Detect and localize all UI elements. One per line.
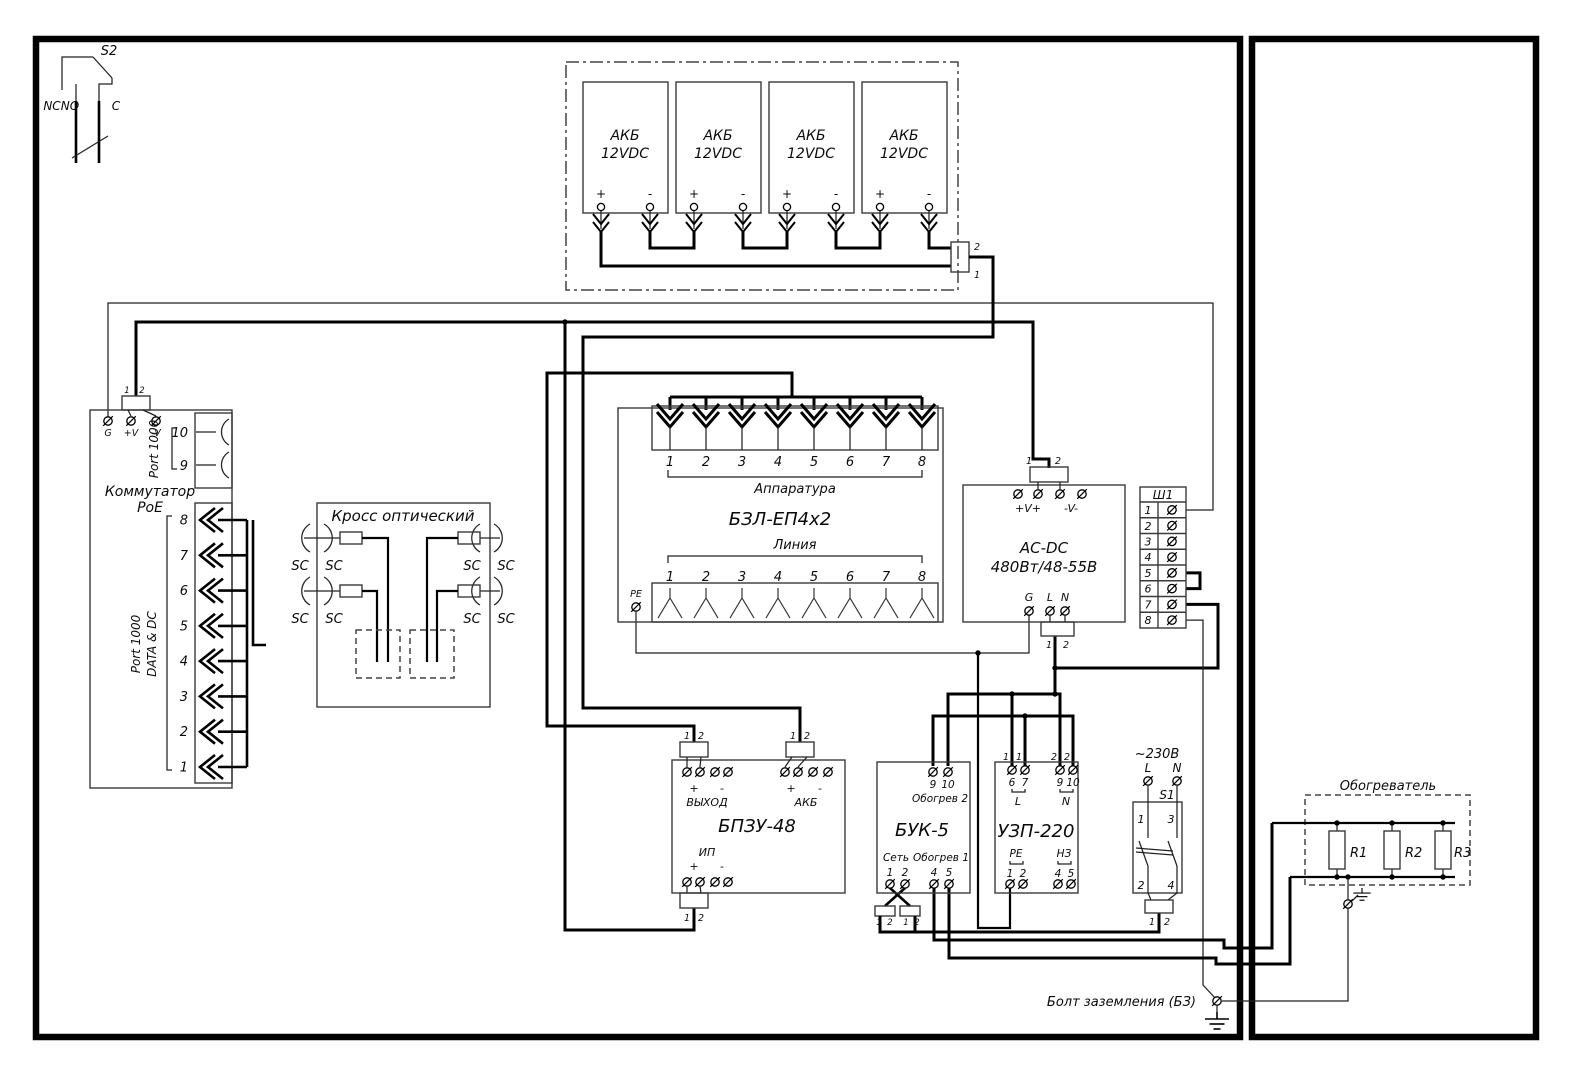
l-label: L bbox=[1047, 591, 1053, 604]
screw-terminal-icon bbox=[723, 767, 733, 777]
screw-terminal-icon bbox=[808, 767, 818, 777]
cross-title: Кросс оптический bbox=[332, 507, 475, 525]
data-ports-label-line2: DATA & DC bbox=[145, 611, 159, 677]
net-cross-wire bbox=[885, 888, 905, 906]
contact-number: 3 bbox=[1168, 813, 1175, 826]
bzl-line-connectors bbox=[658, 588, 934, 618]
bpzu-title: БПЗУ-48 bbox=[718, 816, 796, 837]
battery-terminal-icon bbox=[597, 203, 604, 210]
s2-label: S2 bbox=[101, 44, 118, 59]
screw-terminal-icon bbox=[1045, 606, 1055, 616]
minus-label: - bbox=[720, 860, 724, 873]
port-socket-arc bbox=[221, 452, 229, 478]
sc-label: SC bbox=[463, 612, 481, 627]
screw-terminal-icon bbox=[103, 416, 113, 426]
screw-terminal-icon bbox=[1167, 600, 1177, 610]
s2-no-label: NO bbox=[61, 99, 79, 113]
dc-power-bus-wire bbox=[136, 322, 1049, 468]
wiring-diagram: S2 NC NO C АКБ 12VDC АКБ 12VDC АКБ 12VDC… bbox=[0, 0, 1570, 1080]
bzl-top-term: 3 bbox=[738, 455, 746, 470]
s2-nc-label: NC bbox=[43, 99, 61, 113]
battery-label: АКБ bbox=[795, 128, 825, 144]
bzl-top-term: 8 bbox=[918, 455, 926, 470]
contact-number: 4 bbox=[1168, 879, 1175, 892]
screw-terminal-icon bbox=[682, 767, 692, 777]
uzp-title: УЗП-220 bbox=[998, 821, 1075, 842]
screw-terminal-icon bbox=[1055, 765, 1065, 775]
net-to-s1-cable bbox=[880, 913, 1159, 932]
terminal-number: 4 bbox=[1055, 868, 1062, 880]
pe-wire bbox=[636, 612, 1029, 653]
sc-label: SC bbox=[325, 612, 343, 627]
pin-number: 1 bbox=[1046, 640, 1052, 651]
wire-number: 2 bbox=[1064, 752, 1070, 763]
fiber bbox=[362, 538, 388, 662]
ip-label: ИП bbox=[699, 846, 716, 859]
junction-dot bbox=[1009, 691, 1014, 696]
screw-terminal-icon bbox=[1167, 568, 1177, 578]
screw-terminal-icon bbox=[929, 879, 939, 889]
heater-resistors bbox=[1329, 823, 1451, 877]
port-number: 1 bbox=[180, 761, 188, 776]
screw-terminal-icon bbox=[900, 879, 910, 889]
terminal-number: 7 bbox=[1022, 777, 1029, 789]
battery-label: АКБ bbox=[888, 128, 918, 144]
battery-label: АКБ bbox=[702, 128, 732, 144]
s1-label: S1 bbox=[1159, 788, 1174, 802]
bpzu-charger: 1 2 1 2 + - ВЫХОД + - АКБ БПЗУ-48 ИП + -… bbox=[672, 731, 845, 924]
wire-number: 2 bbox=[974, 242, 980, 253]
pin-number: 1 bbox=[790, 731, 796, 742]
pin-number: 1 bbox=[684, 731, 690, 742]
wire-number: 1 bbox=[974, 270, 980, 281]
screw-terminal-icon bbox=[1167, 505, 1177, 515]
battery-label: АКБ bbox=[609, 128, 639, 144]
nz-label: НЗ bbox=[1057, 848, 1072, 860]
battery-terminal-icon bbox=[925, 203, 932, 210]
poe-title-line2: PoE bbox=[137, 500, 163, 516]
bzl-top-term: 6 bbox=[846, 455, 854, 470]
plus-label: + bbox=[786, 782, 795, 795]
port-number: 7 bbox=[180, 549, 189, 564]
sh1-mains-feed bbox=[1055, 604, 1218, 668]
acdc-title-line2: 480Вт/48-55В bbox=[991, 558, 1098, 576]
sc-label: SC bbox=[463, 559, 481, 574]
pe-label: PE bbox=[630, 589, 642, 600]
screw-terminal-icon bbox=[1167, 552, 1177, 562]
screw-terminal-icon bbox=[695, 877, 705, 887]
screw-terminal-icon bbox=[1167, 584, 1177, 594]
bzl-top-connectors bbox=[657, 404, 935, 450]
minus-label: - bbox=[927, 187, 931, 201]
acdc-psu: 1 2 +V+ -V- AC-DC 480Вт/48-55В G L N 1 2 bbox=[963, 456, 1125, 651]
cable-slash-mark bbox=[72, 136, 108, 158]
port-number: 4 bbox=[180, 655, 188, 670]
pin-number: 1 bbox=[876, 918, 881, 928]
sh1-row-number: 7 bbox=[1145, 599, 1152, 612]
sh1-row-number: 4 bbox=[1145, 551, 1152, 564]
screw-terminal-icon bbox=[1343, 899, 1353, 909]
pin-number: 2 bbox=[698, 913, 704, 924]
pin-number: 2 bbox=[804, 731, 810, 742]
resistor bbox=[1435, 831, 1451, 869]
bracket bbox=[1010, 861, 1023, 864]
ground-icon bbox=[1353, 888, 1370, 900]
bzl-top-term: 1 bbox=[666, 455, 674, 470]
pin-number: 1 bbox=[1149, 917, 1155, 928]
ground-bolt: Болт заземления (БЗ) bbox=[1047, 995, 1229, 1029]
junction-dot bbox=[1022, 713, 1027, 718]
screw-terminal-icon bbox=[1024, 606, 1034, 616]
g-terminal-label: G bbox=[104, 428, 111, 439]
plus-label: + bbox=[782, 187, 792, 201]
schematic-page: S2 NC NO C АКБ 12VDC АКБ 12VDC АКБ 12VDC… bbox=[0, 0, 1570, 1080]
bpzu-ip-connector bbox=[680, 893, 708, 908]
screw-terminal-icon bbox=[1167, 537, 1177, 547]
terminal-number: 2 bbox=[902, 867, 909, 879]
minus-label: - bbox=[818, 782, 822, 795]
sh1-row-number: 2 bbox=[1145, 520, 1152, 533]
ground-icon bbox=[1205, 1012, 1229, 1029]
pin-number: 2 bbox=[698, 731, 704, 742]
sc-label: SC bbox=[497, 612, 515, 627]
plus-label: + bbox=[875, 187, 885, 201]
screw-terminal-icon bbox=[1055, 489, 1065, 499]
screw-terminal-icon bbox=[1018, 879, 1028, 889]
screw-terminal-icon bbox=[1066, 879, 1076, 889]
vminus-label: -V- bbox=[1064, 502, 1078, 515]
wire-number: 2 bbox=[1051, 752, 1057, 763]
battery-terminal-icon bbox=[783, 203, 790, 210]
s1-mains-switch: ~230В L N S1 1 3 2 4 1 2 bbox=[1133, 747, 1182, 928]
battery-voltage: 12VDC bbox=[880, 146, 928, 162]
battery-voltage: 12VDC bbox=[694, 146, 742, 162]
screw-terminal-icon bbox=[793, 767, 803, 777]
heat2-label: Обогрев 2 bbox=[912, 793, 968, 805]
junction-dot bbox=[975, 650, 980, 655]
battery-bank: АКБ 12VDC АКБ 12VDC АКБ 12VDC АКБ 12VDC … bbox=[566, 62, 980, 290]
plus-label: + bbox=[596, 187, 606, 201]
pin-number: 2 bbox=[1055, 456, 1061, 467]
sc-label: SC bbox=[497, 559, 515, 574]
pe-label: РЕ bbox=[1010, 848, 1023, 860]
heater-title: Обогреватель bbox=[1340, 779, 1436, 794]
screw-terminal-icon bbox=[1143, 776, 1153, 786]
pin-number: 1 bbox=[124, 386, 129, 396]
junction-dot bbox=[562, 319, 567, 324]
battery-voltage: 12VDC bbox=[601, 146, 649, 162]
terminal-number: 5 bbox=[946, 867, 953, 879]
screw-terminal-icon bbox=[1005, 879, 1015, 889]
plus-label: + bbox=[689, 187, 699, 201]
sh1-jumper bbox=[1186, 573, 1200, 589]
sh1-row-number: 5 bbox=[1145, 567, 1152, 580]
bzl-title: БЗЛ-ЕП4х2 bbox=[729, 509, 831, 530]
r2-label: R2 bbox=[1405, 846, 1422, 861]
heat1-label: Обогрев 1 bbox=[913, 852, 969, 864]
heater-boundary bbox=[1305, 795, 1470, 885]
terminal-number: 1 bbox=[887, 867, 894, 879]
bracket bbox=[167, 516, 172, 770]
mains-voltage-label: ~230В bbox=[1135, 747, 1180, 762]
cross-box bbox=[317, 503, 490, 707]
acdc-mains-connector bbox=[1041, 622, 1074, 636]
uzp-surge-protector: 1 1 2 2 6 7 9 10 L N УЗП-220 РЕ НЗ 1 2 4… bbox=[995, 752, 1080, 893]
buk-title: БУК-5 bbox=[895, 820, 949, 841]
screw-terminal-icon bbox=[1020, 765, 1030, 775]
plus-label: + bbox=[689, 860, 698, 873]
sc-plug bbox=[458, 532, 480, 544]
screw-terminal-icon bbox=[944, 879, 954, 889]
screw-terminal-icon bbox=[1172, 776, 1182, 786]
minus-label: - bbox=[720, 782, 724, 795]
screw-terminal-icon bbox=[943, 767, 953, 777]
s2-door-switch: S2 NC NO C bbox=[43, 44, 120, 163]
bracket bbox=[668, 556, 922, 563]
apparatura-label: Аппаратура bbox=[753, 482, 836, 497]
sh1-row-number: 8 bbox=[1145, 614, 1152, 627]
terminal-number: 4 bbox=[931, 867, 938, 879]
screw-terminal-icon bbox=[928, 767, 938, 777]
r1-label: R1 bbox=[1350, 846, 1367, 861]
linia-label: Линия bbox=[773, 538, 817, 553]
n-label: N bbox=[1173, 761, 1182, 775]
bracket bbox=[1012, 789, 1025, 792]
bzl-top-term: 7 bbox=[882, 455, 891, 470]
battery-terminal-icon bbox=[690, 203, 697, 210]
battery-group-boundary bbox=[566, 62, 958, 290]
battery-minus-lead bbox=[929, 232, 951, 248]
screw-terminal-icon bbox=[710, 877, 720, 887]
battery-series-link bbox=[743, 232, 787, 248]
minus-label: - bbox=[741, 187, 745, 201]
sc-plug bbox=[458, 585, 480, 597]
bracket bbox=[1058, 861, 1071, 864]
screw-terminal-icon bbox=[1013, 489, 1023, 499]
s2-c-label: C bbox=[112, 99, 121, 113]
buk-controller: 9 10 Обогрев 2 БУК-5 Сеть Обогрев 1 1 2 … bbox=[876, 762, 970, 928]
optical-cross: Кросс оптический SC SC SC SC SC SC SC SC bbox=[291, 503, 515, 707]
port-number: 2 bbox=[180, 725, 188, 740]
screw-terminal-icon bbox=[695, 767, 705, 777]
battery-terminal-icon bbox=[832, 203, 839, 210]
port1000-label: Port 1000 bbox=[147, 419, 161, 478]
r3-label: R3 bbox=[1454, 846, 1471, 861]
terminal-number: 9 bbox=[1057, 777, 1064, 789]
l-label: L bbox=[1015, 795, 1021, 808]
terminal-number: 10 bbox=[941, 779, 955, 791]
net-cross-wire bbox=[890, 888, 910, 906]
pin-number: 2 bbox=[139, 386, 144, 396]
screw-terminal-icon bbox=[126, 416, 136, 426]
akb-label: АКБ bbox=[794, 796, 818, 809]
screw-terminal-icon bbox=[780, 767, 790, 777]
heater-feed-wire-1 bbox=[934, 823, 1272, 948]
plus-label: + bbox=[689, 782, 698, 795]
bzl-top-term: 5 bbox=[810, 455, 818, 470]
bracket bbox=[668, 470, 922, 477]
wire-number: 1 bbox=[1003, 752, 1009, 763]
sc-label: SC bbox=[291, 612, 309, 627]
terminal-number: 5 bbox=[1068, 868, 1075, 880]
minus-label: - bbox=[834, 187, 838, 201]
sh1-row-number: 3 bbox=[1145, 536, 1152, 549]
screw-terminal-icon bbox=[1007, 765, 1017, 775]
sc-label: SC bbox=[291, 559, 309, 574]
bzl-top-term: 4 bbox=[774, 455, 782, 470]
port-socket-arc bbox=[221, 419, 229, 445]
battery-voltage: 12VDC bbox=[787, 146, 835, 162]
battery-to-bpzu-cable bbox=[583, 257, 993, 742]
wiring bbox=[108, 257, 1290, 999]
net-label: Сеть bbox=[883, 852, 909, 864]
pin-number: 2 bbox=[1063, 640, 1069, 651]
vplus-label: +V+ bbox=[1015, 502, 1041, 515]
pin-number: 1 bbox=[684, 913, 690, 924]
battery-terminal-icon bbox=[646, 203, 653, 210]
splice-tray bbox=[410, 630, 454, 678]
screw-terminal-icon bbox=[631, 602, 641, 612]
sc-plug bbox=[340, 532, 362, 544]
bzl-top-term: 2 bbox=[702, 455, 710, 470]
sh1-row-number: 6 bbox=[1145, 583, 1152, 596]
pin-number: 2 bbox=[1164, 917, 1170, 928]
sh1-title: Ш1 bbox=[1153, 488, 1173, 502]
screw-terminal-icon bbox=[1033, 489, 1043, 499]
acdc-title-line1: AC-DC bbox=[1019, 539, 1069, 557]
terminal-number: 6 bbox=[1009, 777, 1016, 789]
blade-link bbox=[1136, 852, 1173, 855]
l-label: L bbox=[1145, 761, 1152, 775]
battery-terminal-icon bbox=[876, 203, 883, 210]
out-label: ВЫХОД bbox=[686, 796, 728, 809]
screw-terminal-icon bbox=[885, 879, 895, 889]
bpzu-akb-connector bbox=[786, 742, 814, 757]
screw-terminal-icon bbox=[1060, 606, 1070, 616]
battery-series-link bbox=[836, 232, 880, 248]
contact-number: 1 bbox=[1138, 813, 1145, 826]
bzl-protection-block: 1 2 3 4 5 6 7 8 Аппаратура БЗЛ-ЕП4х2 Лин… bbox=[618, 404, 943, 622]
terminal-number: 10 bbox=[1066, 777, 1080, 789]
net-connector bbox=[900, 906, 920, 916]
pin-number: 2 bbox=[914, 918, 919, 928]
screw-terminal-icon bbox=[1068, 765, 1078, 775]
battery-series-link bbox=[650, 232, 694, 248]
switch-blade bbox=[1168, 841, 1177, 866]
ground-bolt-label: Болт заземления (БЗ) bbox=[1047, 995, 1196, 1010]
heater-assembly: Обогреватель R1 R2 R3 bbox=[1222, 779, 1471, 1001]
port-number: 5 bbox=[180, 619, 188, 634]
battery-terminal-icon bbox=[739, 203, 746, 210]
n-label: N bbox=[1062, 795, 1070, 808]
sc-plug bbox=[340, 585, 362, 597]
sc-label: SC bbox=[325, 559, 343, 574]
port-number: 9 bbox=[180, 459, 188, 474]
fiber bbox=[437, 591, 458, 662]
battery-terminal-wires bbox=[601, 211, 929, 229]
screw-terminal-icon bbox=[682, 877, 692, 887]
poe-switch: 1 2 G +V -V 10 9 Port 1000 Коммутатор Po… bbox=[90, 386, 266, 788]
resistor bbox=[1329, 831, 1345, 869]
s1-connector bbox=[1145, 900, 1173, 913]
vplus-terminal-label: +V bbox=[124, 428, 140, 439]
terminal-number: 9 bbox=[930, 779, 937, 791]
data-ports: 8 7 6 5 4 3 2 1 bbox=[180, 508, 223, 779]
switch-blade bbox=[1139, 841, 1148, 866]
sh1-row-number: 1 bbox=[1145, 504, 1152, 517]
terminal-number: 1 bbox=[1007, 868, 1014, 880]
port-number: 6 bbox=[180, 584, 188, 599]
ground-bolt-icon bbox=[1212, 996, 1222, 1006]
g-label: G bbox=[1025, 591, 1034, 604]
screw-terminal-icon bbox=[823, 767, 833, 777]
screw-terminal-icon bbox=[1167, 615, 1177, 625]
terminal-number: 2 bbox=[1020, 868, 1027, 880]
pin-number: 1 bbox=[903, 918, 908, 928]
screw-terminal-icon bbox=[1077, 489, 1087, 499]
resistor bbox=[1384, 831, 1400, 869]
junction-dot bbox=[1052, 665, 1057, 670]
screw-terminal-icon bbox=[723, 877, 733, 887]
screw-terminal-icon bbox=[1053, 879, 1063, 889]
pin-number: 1 bbox=[1026, 456, 1032, 467]
fiber bbox=[362, 591, 377, 662]
acdc-dc-connector bbox=[1030, 467, 1068, 482]
sh1-terminal-block: Ш1 1 2 3 4 5 6 7 8 bbox=[1140, 487, 1186, 628]
wire-number: 1 bbox=[1016, 752, 1022, 763]
poe-title-line1: Коммутатор bbox=[105, 484, 195, 500]
sh1-to-ground-bolt-wire bbox=[1186, 620, 1216, 999]
minus-label: - bbox=[648, 187, 652, 201]
power-connector bbox=[122, 396, 150, 410]
port-number: 3 bbox=[180, 690, 188, 705]
screw-terminal-icon bbox=[710, 767, 720, 777]
port-number: 8 bbox=[180, 514, 188, 529]
n-label: N bbox=[1061, 591, 1069, 604]
right-cabinet-panel bbox=[1252, 39, 1536, 1037]
contact-number: 2 bbox=[1138, 879, 1145, 892]
pin-number: 2 bbox=[887, 918, 892, 928]
battery-cable-connector bbox=[951, 242, 969, 272]
fiber bbox=[427, 538, 458, 662]
bracket bbox=[1060, 789, 1073, 792]
net-connector bbox=[875, 906, 895, 916]
screw-terminal-icon bbox=[1167, 521, 1177, 531]
data-ports-label-line1: Port 1000 bbox=[129, 614, 143, 673]
port-bus-wires bbox=[218, 520, 266, 767]
bpzu-out-connector bbox=[680, 742, 708, 757]
